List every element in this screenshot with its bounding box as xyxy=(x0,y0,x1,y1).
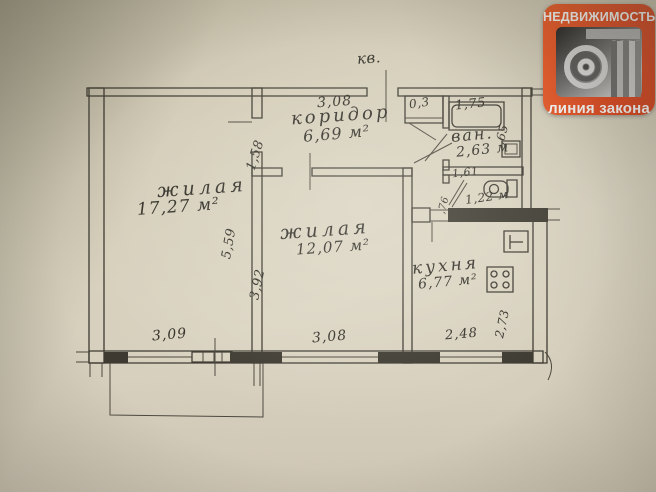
tub-length-dim: 1,75 xyxy=(454,96,486,112)
room2-width-dim: 3,08 xyxy=(311,328,347,345)
drafting-ticks xyxy=(76,143,560,386)
floorplan-photo: кв. 3,08 коридор 6,69 м² 0,3 1,75 ,65 ва… xyxy=(0,0,656,492)
logo-column-image xyxy=(556,27,642,97)
logo-bottom-text: линия закона xyxy=(543,97,655,117)
balcony-outline xyxy=(110,363,263,417)
agency-logo: НЕДВИЖИМОСТЬ xyxy=(543,4,655,115)
ionic-column-icon xyxy=(556,27,642,97)
kitchen-width-dim: 2,48 xyxy=(444,327,478,343)
vent-duct-icon xyxy=(504,231,528,252)
wc-length-dim: 1,61 xyxy=(451,166,479,180)
stove-icon xyxy=(487,267,513,292)
logo-top-text: НЕДВИЖИМОСТЬ xyxy=(543,4,655,24)
room1-width-dim: 3,09 xyxy=(151,326,187,343)
closet-area-label: 0,3 xyxy=(408,96,430,111)
apartment-entrance-label: кв. xyxy=(357,50,382,67)
